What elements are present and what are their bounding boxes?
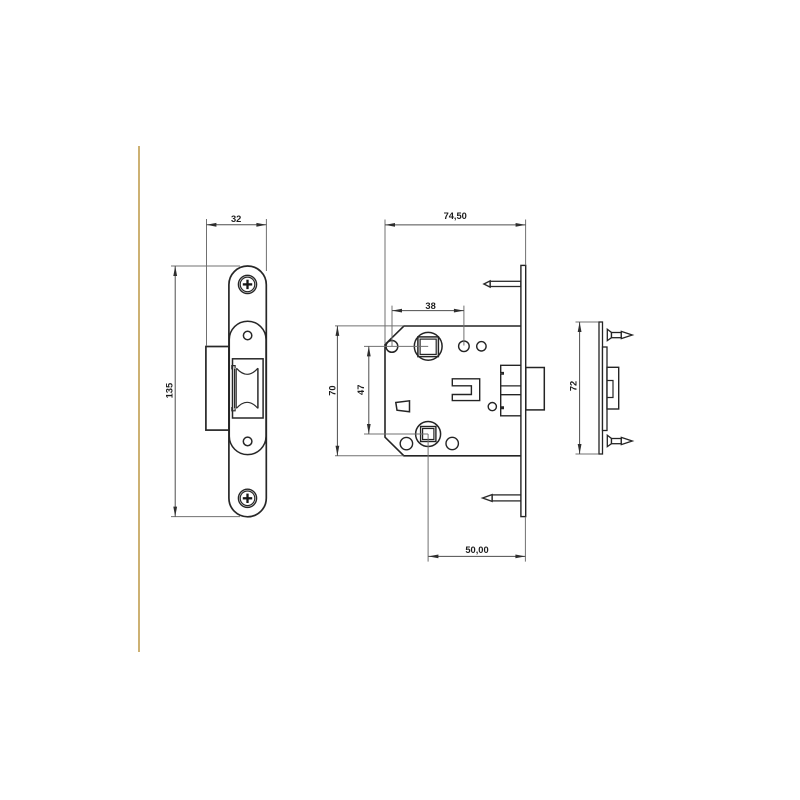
svg-text:72: 72 (569, 381, 579, 391)
svg-text:74,50: 74,50 (444, 211, 467, 221)
svg-text:38: 38 (425, 301, 435, 311)
svg-text:32: 32 (231, 214, 241, 224)
svg-text:135: 135 (164, 383, 174, 399)
svg-text:47: 47 (356, 385, 366, 395)
svg-text:50,00: 50,00 (465, 545, 488, 555)
svg-text:70: 70 (327, 385, 337, 395)
